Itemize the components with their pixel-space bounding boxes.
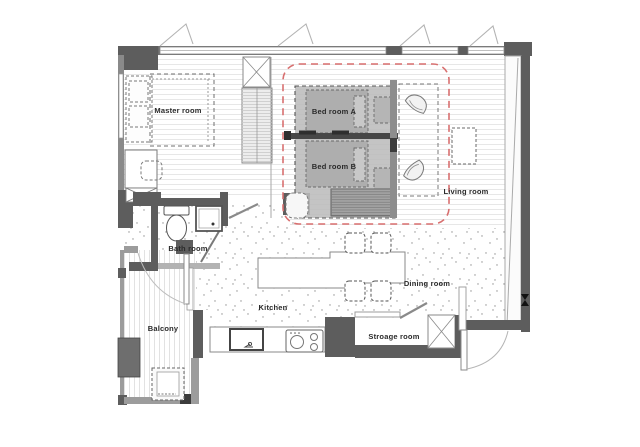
bedroom-block — [284, 80, 398, 218]
master-bed — [126, 76, 152, 142]
label-master-room: Master room — [154, 106, 201, 115]
storage-shaft-box — [428, 315, 455, 348]
entry-door-leaf — [461, 330, 467, 370]
bedroom-closet — [331, 189, 394, 216]
kitchen-sink — [230, 329, 263, 350]
stove — [286, 330, 323, 352]
label-storage-room: Stroage room — [368, 332, 419, 341]
label-bed-room-a: Bed room A — [312, 107, 357, 116]
label-bed-room-b: Bed room B — [312, 162, 357, 171]
master-desk — [125, 150, 157, 188]
shaft-box — [243, 57, 270, 87]
balcony-door-leaf — [184, 254, 189, 304]
bench-seat — [286, 193, 308, 218]
sliding-door-handle — [390, 138, 397, 152]
awning-window-symbols — [160, 24, 498, 46]
label-living-room: Living room — [443, 187, 488, 196]
floor-plan-page: Master room Bed room A Bed room B Living… — [0, 0, 640, 447]
coffee-table — [452, 128, 476, 164]
washer — [152, 368, 184, 400]
label-kitchen: Kitchen — [259, 303, 288, 312]
label-bath-room: Bath room — [168, 244, 207, 253]
sliding-panel-strip — [505, 56, 521, 328]
ac-unit — [118, 338, 140, 377]
floor-plan: Master room Bed room A Bed room B Living… — [0, 0, 640, 447]
entry-door-swing — [467, 331, 508, 369]
column-top-right — [504, 42, 532, 56]
window-left — [119, 74, 123, 138]
window-strips — [160, 47, 504, 54]
label-balcony: Balcony — [148, 324, 179, 333]
label-dining-room: Dining room — [404, 279, 450, 288]
shower-tray — [196, 206, 222, 231]
